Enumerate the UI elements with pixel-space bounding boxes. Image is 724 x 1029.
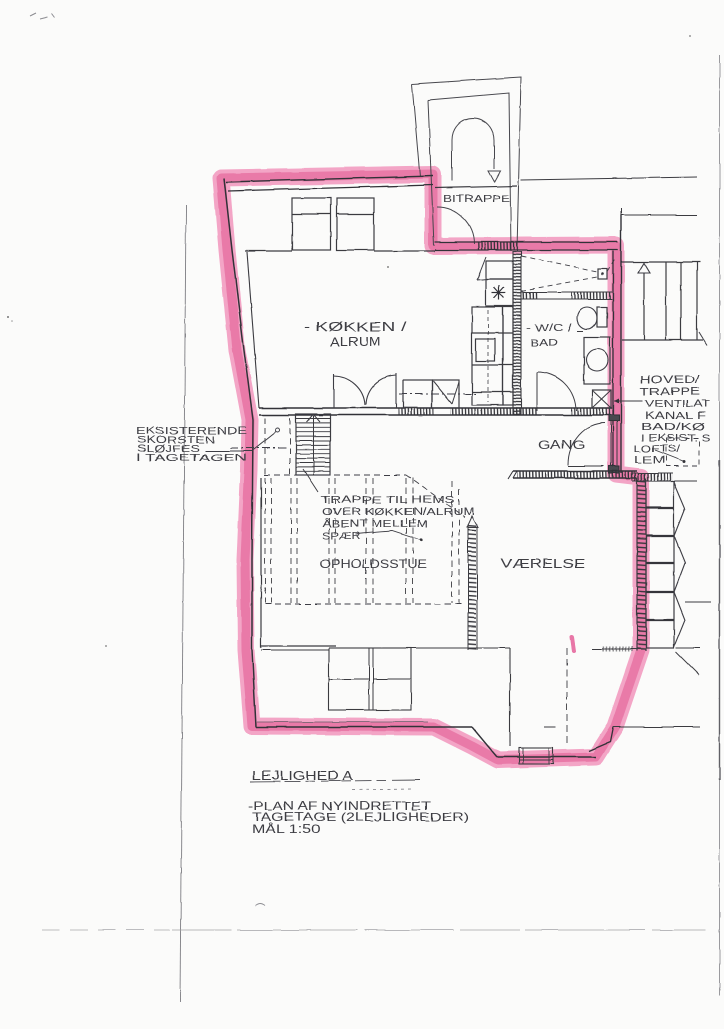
svg-text:- W/C /: - W/C / xyxy=(526,322,572,334)
svg-text:I TAGETAGEN: I TAGETAGEN xyxy=(136,453,247,464)
svg-text:- KØKKEN /: - KØKKEN / xyxy=(304,319,407,334)
svg-text:KANAL F: KANAL F xyxy=(645,411,706,422)
svg-text:BAD/KØ: BAD/KØ xyxy=(641,422,705,433)
svg-text:TRAPPE TIL HEMS: TRAPPE TIL HEMS xyxy=(321,494,455,506)
svg-text:OPHOLDSSTUE: OPHOLDSSTUE xyxy=(320,557,427,571)
svg-text:SPÆR: SPÆR xyxy=(322,530,360,542)
svg-text:ALRUM: ALRUM xyxy=(330,334,381,349)
svg-text:ÅBENT MELLEM: ÅBENT MELLEM xyxy=(322,517,428,530)
svg-text:LOFTS/: LOFTS/ xyxy=(634,444,680,455)
svg-text:LEM: LEM xyxy=(634,455,665,466)
svg-text:VÆRELSE: VÆRELSE xyxy=(501,557,585,571)
svg-text:HOVED/: HOVED/ xyxy=(640,374,700,386)
svg-text:BAD: BAD xyxy=(530,337,559,349)
svg-text:VENTILAT: VENTILAT xyxy=(645,399,710,410)
svg-text:GANG: GANG xyxy=(538,438,585,452)
svg-text:TRAPPE: TRAPPE xyxy=(640,386,700,398)
svg-text:BITRAPPE: BITRAPPE xyxy=(443,194,510,205)
svg-text:MÅL 1:50: MÅL 1:50 xyxy=(252,821,320,836)
svg-text:OVER KØKKEN/ALRUM: OVER KØKKEN/ALRUM xyxy=(322,506,475,518)
svg-text:I EKSIST. S: I EKSIST. S xyxy=(641,433,710,444)
